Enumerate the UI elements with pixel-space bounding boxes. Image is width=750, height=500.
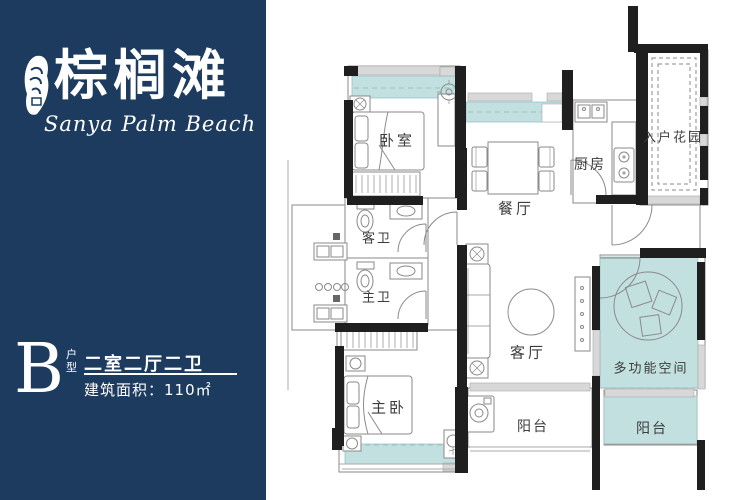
floorplan-page: 棕榈滩 Sanya Palm Beach B 户型 二室二厅二卫 建筑面积：11…	[0, 0, 750, 500]
room-label-dining-room: 餐厅	[498, 198, 534, 219]
room-label-entry-garden: 入户花园	[643, 127, 703, 146]
ac-unit-icon	[346, 356, 365, 371]
door-arc	[398, 291, 426, 319]
door-arc	[424, 212, 457, 245]
room-label-balcony-right: 阳台	[636, 418, 668, 438]
wardrobe	[350, 172, 420, 196]
wardrobe	[341, 330, 417, 350]
room-label-kitchen: 厨房	[574, 154, 606, 174]
room-label-balcony-center: 阳台	[517, 416, 549, 436]
kitchen-sink	[575, 102, 607, 122]
ac-unit-icon	[343, 436, 361, 451]
room-label-master-bedroom: 主卧	[371, 397, 407, 418]
washbasin	[390, 263, 422, 279]
stove	[614, 148, 634, 182]
room-label-master-bathroom: 主卫	[362, 287, 392, 306]
door-arc	[398, 224, 426, 252]
room-label-living-room: 客厅	[510, 342, 546, 363]
room-label-bedroom: 卧室	[379, 130, 415, 151]
fan-coil-icon	[466, 244, 488, 264]
door-arc	[612, 205, 652, 245]
washing-machine	[464, 396, 494, 432]
room-label-guest-bathroom: 客卫	[362, 228, 392, 247]
washbasin	[390, 203, 422, 219]
laundry-counter	[314, 233, 349, 322]
planter	[652, 58, 696, 190]
fan-coil-icon	[466, 358, 488, 378]
desk	[438, 94, 455, 146]
tv-cabinet	[575, 277, 590, 351]
round-table	[508, 289, 554, 335]
dining-table	[472, 142, 554, 194]
room-label-multi-function: 多功能空间	[613, 358, 688, 377]
